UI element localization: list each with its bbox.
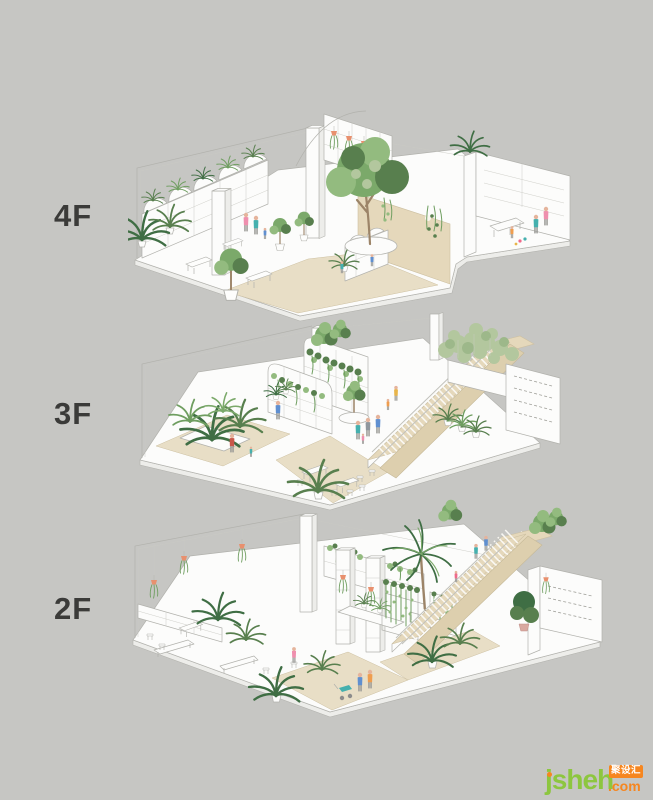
floor-4f-illustration bbox=[128, 94, 580, 326]
watermark-logo: jsheh 聚设汇 .com bbox=[545, 762, 651, 798]
floor-2f-illustration bbox=[124, 492, 624, 722]
floor-label-4f: 4F bbox=[54, 200, 92, 231]
watermark-brand-text: jsheh bbox=[545, 766, 613, 794]
floor-label-2f: 2F bbox=[54, 593, 92, 624]
floor-2f-column bbox=[300, 514, 317, 612]
watermark-badge: 聚设汇 bbox=[609, 765, 643, 778]
poster: 4F bbox=[0, 0, 653, 800]
watermark-tld: .com bbox=[608, 779, 641, 793]
floor-label-3f: 3F bbox=[54, 398, 92, 429]
floor-3f-illustration bbox=[128, 300, 588, 515]
watermark-j-dot-icon bbox=[547, 772, 552, 777]
